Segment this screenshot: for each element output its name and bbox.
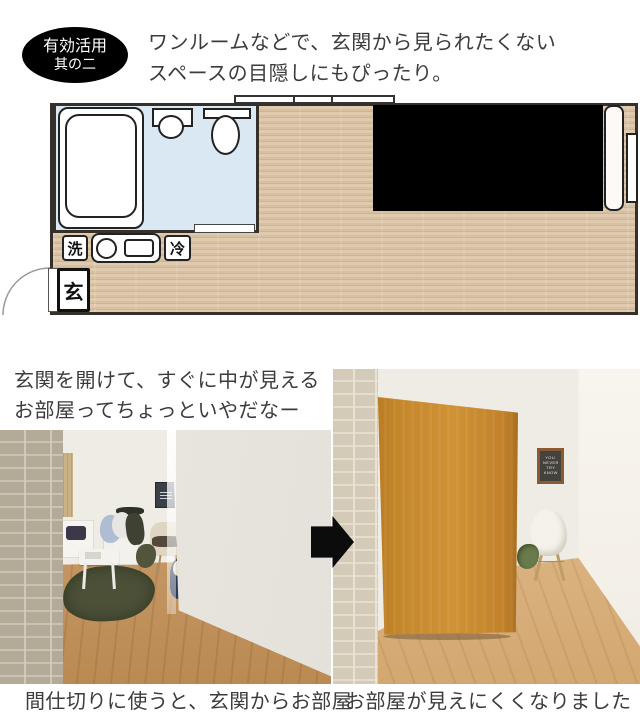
floorplan-diagram: 洗 冷 玄 xyxy=(0,93,640,321)
kitchen-stove xyxy=(124,239,154,257)
caption-before: 間仕切りに使うと、玄関からお部屋 xyxy=(25,685,352,714)
fridge-box: 冷 xyxy=(164,235,191,261)
entrance-box: 玄 xyxy=(57,268,90,312)
chair-strut xyxy=(536,561,564,562)
caption-after: お部屋が見えにくくなりました xyxy=(345,685,632,714)
photo-before xyxy=(0,430,331,684)
washer-label: 洗 xyxy=(67,238,82,259)
window-divider xyxy=(293,97,295,102)
usage-badge: 有効活用 其の二 xyxy=(22,27,128,83)
floorplan-right-window xyxy=(626,133,638,203)
page: { "badge": { "line1": "有効活用", "line2": "… xyxy=(0,0,640,696)
headline-line2: スペースの目隠しにもぴったり。 xyxy=(148,59,556,90)
toilet-bowl xyxy=(211,115,240,155)
entrance-label: 玄 xyxy=(64,276,84,305)
worry-line1: 玄関を開けて、すぐに中が見える xyxy=(14,366,320,396)
photo-after: YOU NEVER TRY KNOW xyxy=(333,369,640,684)
worry-line2: お部屋ってちょっといやだなー xyxy=(14,396,320,426)
window-divider xyxy=(331,97,333,102)
bed-rect xyxy=(604,105,624,211)
headline: ワンルームなどで、玄関から見られたくない スペースの目隠しにもぴったり。 xyxy=(148,28,556,90)
poster-line: KNOW xyxy=(543,472,557,476)
brick-wall xyxy=(0,430,63,684)
sink-bowl xyxy=(158,115,184,139)
headline-line1: ワンルームなどで、玄関から見られたくない xyxy=(148,28,556,59)
kitchen-sink xyxy=(96,238,117,259)
wall-poster: YOU NEVER TRY KNOW xyxy=(537,448,564,484)
washer-box: 洗 xyxy=(62,235,88,261)
wall-corner-highlight xyxy=(167,430,176,614)
worry-text: 玄関を開けて、すぐに中が見える お部屋ってちょっといやだなー xyxy=(14,366,320,426)
badge-line2: 其の二 xyxy=(54,56,96,72)
shelf-bag xyxy=(66,526,86,540)
partition-panel xyxy=(375,397,518,637)
bathtub xyxy=(65,114,137,218)
bathroom-door xyxy=(194,224,255,233)
badge-line1: 有効活用 xyxy=(43,38,107,56)
fridge-label: 冷 xyxy=(170,238,185,259)
hidden-space-rect xyxy=(373,105,603,211)
table-papers xyxy=(85,552,101,559)
